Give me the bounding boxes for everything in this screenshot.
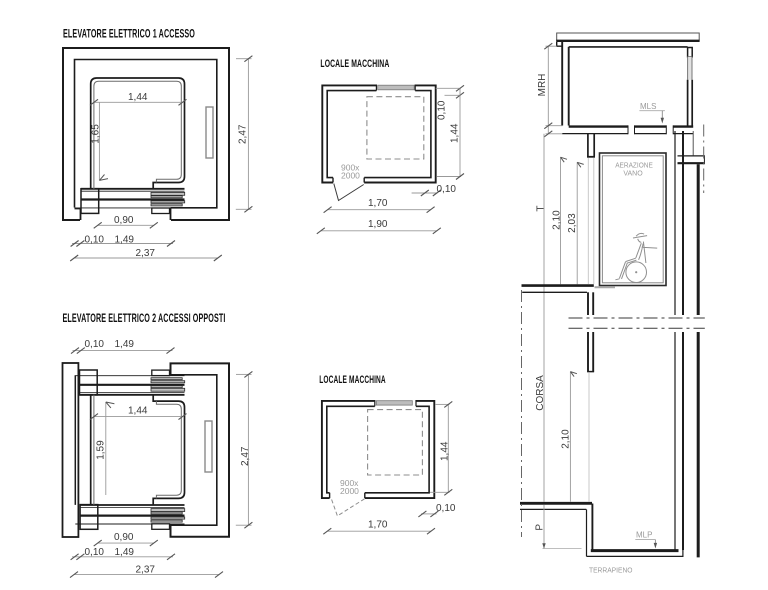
svg-text:MLS: MLS: [640, 102, 656, 111]
svg-text:1,90: 1,90: [368, 219, 388, 230]
svg-text:TERRAPIENO: TERRAPIENO: [589, 568, 633, 575]
svg-text:MLP: MLP: [636, 531, 652, 540]
svg-text:2,47: 2,47: [240, 446, 251, 466]
svg-text:1,44: 1,44: [449, 123, 460, 143]
svg-text:1,65: 1,65: [91, 124, 102, 144]
svg-text:1,44: 1,44: [128, 405, 148, 416]
svg-text:1,44: 1,44: [128, 92, 148, 103]
svg-text:0,10: 0,10: [436, 503, 456, 514]
svg-text:0,90: 0,90: [114, 532, 134, 543]
svg-text:ELEVATORE ELETTRICO 1 ACCESSO: ELEVATORE ELETTRICO 1 ACCESSO: [63, 27, 195, 41]
svg-text:2,37: 2,37: [136, 565, 156, 576]
svg-text:2,37: 2,37: [136, 248, 156, 259]
svg-text:ELEVATORE ELETTRICO 2 ACCESSI: ELEVATORE ELETTRICO 2 ACCESSI OPPOSTI: [63, 311, 226, 325]
svg-text:0,10: 0,10: [85, 339, 105, 350]
svg-text:T: T: [535, 205, 546, 211]
svg-text:1,70: 1,70: [368, 198, 388, 209]
svg-text:0,10: 0,10: [85, 547, 105, 558]
svg-text:1,49: 1,49: [115, 547, 135, 558]
svg-text:1,70: 1,70: [368, 520, 388, 531]
svg-text:1,44: 1,44: [440, 441, 451, 461]
svg-text:2,10: 2,10: [552, 210, 563, 230]
svg-text:0,90: 0,90: [114, 215, 134, 226]
svg-text:LOCALE MACCHINA: LOCALE MACCHINA: [320, 58, 389, 70]
svg-text:0,10: 0,10: [437, 184, 457, 195]
svg-text:0,10: 0,10: [437, 100, 448, 120]
svg-text:1,49: 1,49: [115, 339, 135, 350]
svg-text:1,59: 1,59: [96, 440, 107, 460]
svg-text:2000: 2000: [341, 171, 360, 181]
svg-text:2,03: 2,03: [567, 213, 578, 233]
svg-text:2,10: 2,10: [560, 429, 571, 449]
svg-text:LOCALE MACCHINA: LOCALE MACCHINA: [319, 374, 386, 386]
svg-text:CORSA: CORSA: [535, 375, 546, 411]
svg-text:VANO: VANO: [623, 171, 643, 178]
svg-text:P: P: [535, 524, 546, 531]
svg-text:2000: 2000: [340, 486, 359, 496]
svg-text:AERAZIONE: AERAZIONE: [615, 162, 653, 169]
svg-text:1,49: 1,49: [115, 234, 135, 245]
svg-text:0,10: 0,10: [85, 234, 105, 245]
svg-text:MRH: MRH: [537, 74, 548, 97]
svg-text:2,47: 2,47: [238, 124, 249, 144]
